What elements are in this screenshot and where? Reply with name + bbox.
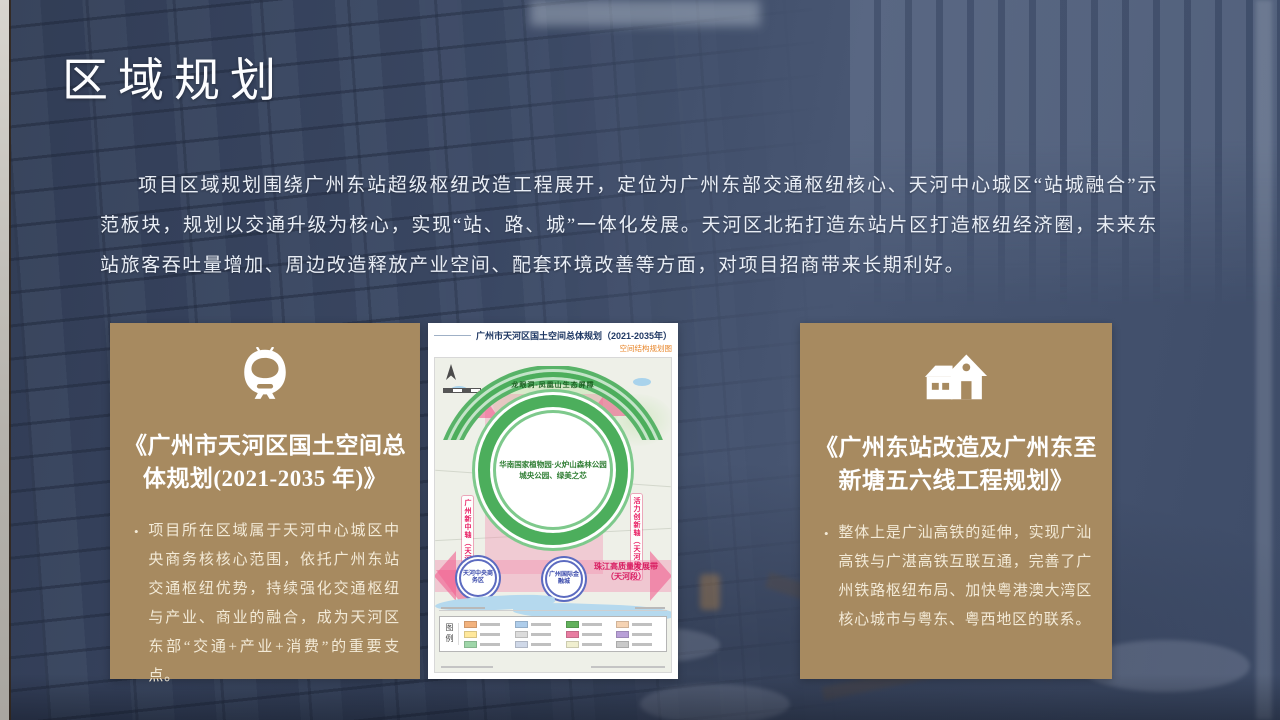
bullet-dot: •	[134, 517, 139, 691]
bullet-dot: •	[824, 519, 829, 635]
legend-item	[515, 631, 561, 638]
green-core-line2: 城央公园、绿美之芯	[519, 471, 587, 480]
legend-item	[515, 621, 561, 628]
legend-item	[515, 641, 561, 648]
eco-barrier-label: 龙眼洞-凤凰山生态屏障	[511, 380, 594, 390]
house-icon	[923, 347, 989, 405]
green-core-label: 华南国家植物园·火炉山森林公园 城央公园、绿美之芯	[493, 459, 613, 481]
page-title: 区域规划	[62, 44, 286, 110]
card-title: 《广州市天河区国土空间总体规划(2021-2035 年)》	[120, 429, 410, 495]
map-subtitle: 空间结构规划图	[434, 343, 672, 354]
legend-item	[464, 621, 510, 628]
map-canvas: 龙眼洞-凤凰山生态屏障 华南国家植物园·火炉山森林公园 城央公园、绿美之芯 广州…	[434, 357, 672, 673]
juice-glass-shape	[700, 574, 720, 610]
card-bullet-text: 整体上是广汕高铁的延伸，实现广汕高铁与广湛高铁互联互通，完善了广州铁路枢纽布局、…	[838, 519, 1092, 635]
green-core-line1: 华南国家植物园·火炉山森林公园	[499, 460, 607, 469]
map-legend: 图例	[439, 616, 667, 652]
belt-arrow-left	[434, 551, 456, 601]
train-icon	[236, 347, 294, 403]
legend-item	[566, 631, 612, 638]
legend-title: 图例	[444, 623, 459, 645]
map-title: 广州市天河区国土空间总体规划（2021-2035年）	[476, 329, 672, 342]
belt-line2: （天河段）	[606, 572, 646, 581]
node-cbd-label: 天河中央商务区	[461, 571, 495, 585]
legend-grid	[464, 620, 662, 649]
legend-item	[566, 641, 612, 648]
bright-window-glare	[530, 0, 760, 26]
legend-item	[616, 631, 662, 638]
legend-item	[616, 641, 662, 648]
node-cbd: 天河中央商务区	[459, 559, 497, 597]
node-finance-city-label: 广州国际金融城	[547, 572, 581, 586]
legend-item	[464, 641, 510, 648]
wall-edge-line	[9, 0, 11, 720]
belt-line1: 珠江高质量发展带	[594, 562, 658, 571]
wall-edge-strip	[0, 0, 9, 720]
card-bullet-text: 项目所在区域属于天河中心城区中央商务核核心范围，依托广州东站交通枢纽优势，持续强…	[148, 517, 400, 691]
map-footnote-bar	[635, 607, 665, 609]
card-title: 《广州东站改造及广州东至新塘五六线工程规划》	[810, 431, 1102, 497]
card-bullet: • 项目所在区域属于天河中心城区中央商务核核心范围，依托广州东站交通枢纽优势，持…	[134, 517, 400, 691]
legend-item	[616, 621, 662, 628]
card-station-reconstruction: 《广州东站改造及广州东至新塘五六线工程规划》 • 整体上是广汕高铁的延伸，实现广…	[800, 323, 1112, 679]
legend-item	[464, 631, 510, 638]
map-title-rule	[434, 335, 471, 336]
slide-region-planning: 区域规划 项目区域规划围绕广州东站超级枢纽改造工程展开，定位为广州东部交通枢纽核…	[0, 0, 1280, 720]
card-bullet: • 整体上是广汕高铁的延伸，实现广汕高铁与广湛高铁互联互通，完善了广州铁路枢纽布…	[824, 519, 1092, 635]
map-source-bar	[591, 666, 665, 668]
intro-paragraph: 项目区域规划围绕广州东站超级枢纽改造工程展开，定位为广州东部交通枢纽核心、天河中…	[100, 166, 1158, 286]
map-source-bar	[441, 666, 493, 668]
belt-label: 珠江高质量发展带 （天河段）	[585, 562, 667, 582]
node-finance-city: 广州国际金融城	[545, 560, 583, 598]
map-footnote-bar	[441, 607, 485, 609]
map-header: 广州市天河区国土空间总体规划（2021-2035年）	[434, 329, 672, 342]
map-footnote-rule	[439, 610, 667, 611]
card-land-use-plan: 《广州市天河区国土空间总体规划(2021-2035 年)》 • 项目所在区域属于…	[110, 323, 420, 679]
planning-map-figure: 广州市天河区国土空间总体规划（2021-2035年） 空间结构规划图 龙眼洞-凤…	[428, 323, 678, 679]
legend-item	[566, 621, 612, 628]
green-core-ring: 华南国家植物园·火炉山森林公园 城央公园、绿美之芯	[478, 395, 628, 545]
